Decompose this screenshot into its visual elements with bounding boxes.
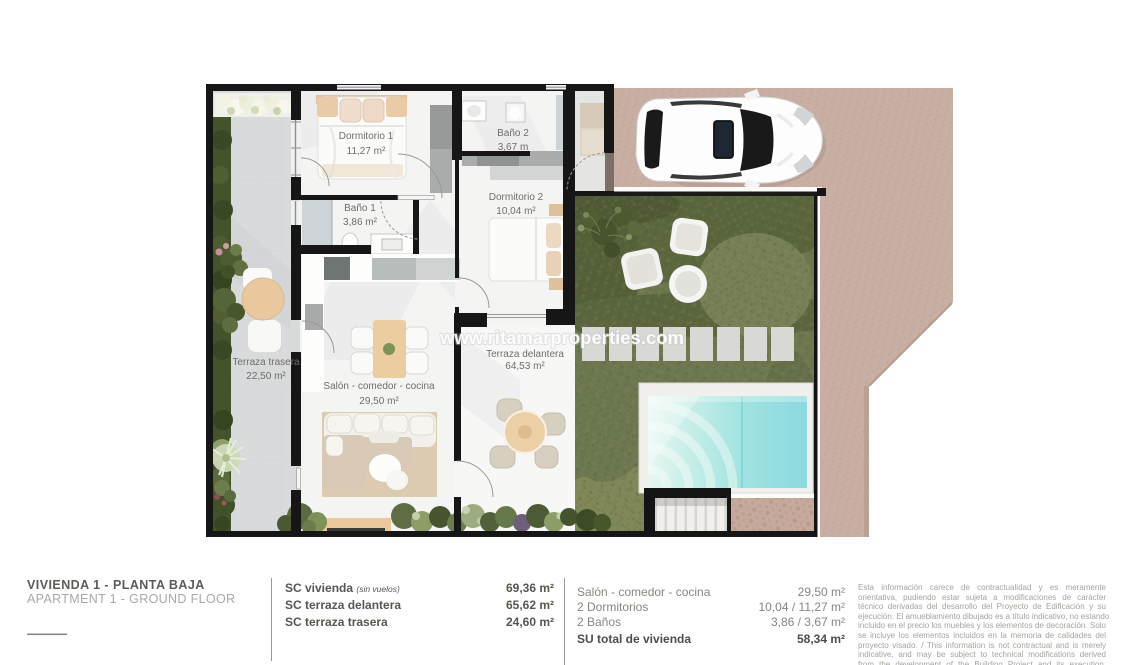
svg-text:SU total de vivienda: SU total de vivienda [577,632,691,646]
svg-text:Baño 2: Baño 2 [497,128,529,139]
svg-text:2 Baños: 2 Baños [577,615,621,629]
svg-text:SC vivienda (sin vuelos): SC vivienda (sin vuelos) [285,581,400,595]
svg-text:11,27 m²: 11,27 m² [347,146,386,157]
svg-text:3,86 m²: 3,86 m² [343,217,378,228]
svg-text:10,04 m²: 10,04 m² [496,206,536,217]
svg-text:29,50 m²: 29,50 m² [798,585,845,599]
svg-text:Terraza trasera: Terraza trasera [232,357,300,368]
svg-text:3,86 / 3,67 m²: 3,86 / 3,67 m² [771,615,845,629]
svg-text:APARTMENT 1 - GROUND FLOOR: APARTMENT 1 - GROUND FLOOR [27,592,235,606]
svg-text:58,34 m²: 58,34 m² [797,632,845,646]
svg-text:www.ritamarproperties.com: www.ritamarproperties.com [439,327,684,348]
svg-text:29,50 m²: 29,50 m² [359,396,399,407]
svg-text:Terraza delantera: Terraza delantera [486,349,564,360]
svg-text:SC terraza trasera: SC terraza trasera [285,615,388,629]
svg-text:Baño 1: Baño 1 [344,203,376,214]
svg-text:3,67 m: 3,67 m [498,142,529,153]
svg-text:2 Dormitorios: 2 Dormitorios [577,600,648,614]
svg-text:Salón - comedor - cocina: Salón - comedor - cocina [323,381,435,392]
svg-text:64,53 m²: 64,53 m² [505,361,545,372]
svg-text:Salón - comedor - cocina: Salón - comedor - cocina [577,585,711,599]
svg-text:VIVIENDA 1 - PLANTA BAJA: VIVIENDA 1 - PLANTA BAJA [27,578,205,592]
svg-text:24,60 m²: 24,60 m² [506,615,554,629]
svg-text:65,62 m²: 65,62 m² [506,598,554,612]
svg-text:22,50 m²: 22,50 m² [246,371,286,382]
svg-text:SC terraza delantera: SC terraza delantera [285,598,401,612]
svg-text:10,04 / 11,27 m²: 10,04 / 11,27 m² [759,600,846,614]
svg-text:Dormitorio 2: Dormitorio 2 [489,192,544,203]
svg-text:Dormitorio 1: Dormitorio 1 [339,131,394,142]
svg-text:69,36 m²: 69,36 m² [506,581,554,595]
